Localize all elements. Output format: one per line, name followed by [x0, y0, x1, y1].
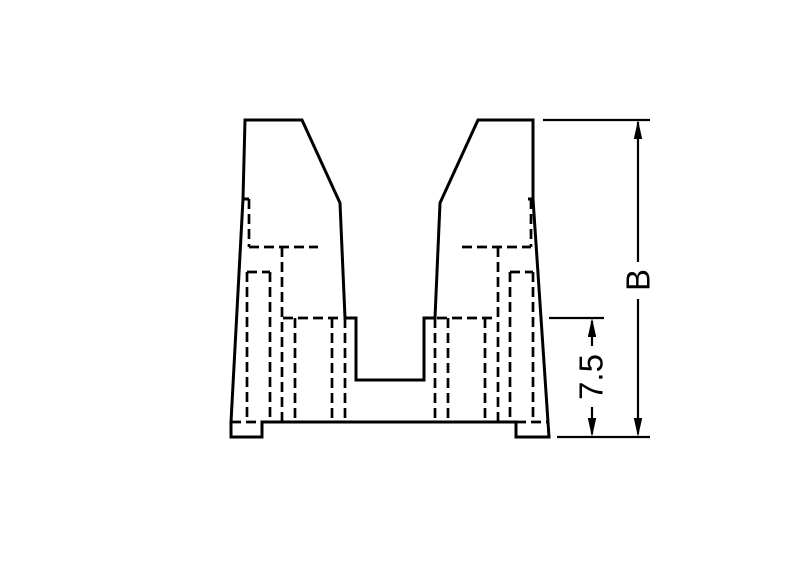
- arrow-b-bottom: [634, 418, 642, 437]
- part-outline: [231, 120, 549, 437]
- dimension-label-step-height: 7.5: [573, 354, 610, 400]
- arrow-step-bottom: [588, 418, 596, 437]
- arrow-step-top: [588, 318, 596, 337]
- dimension-label-overall-height: B: [620, 269, 657, 291]
- technical-drawing-canvas: B 7.5: [0, 0, 800, 576]
- part-edge: [231, 120, 549, 437]
- drawing-page: B 7.5: [0, 0, 800, 576]
- arrow-b-top: [634, 120, 642, 139]
- hidden-lines: [231, 199, 549, 422]
